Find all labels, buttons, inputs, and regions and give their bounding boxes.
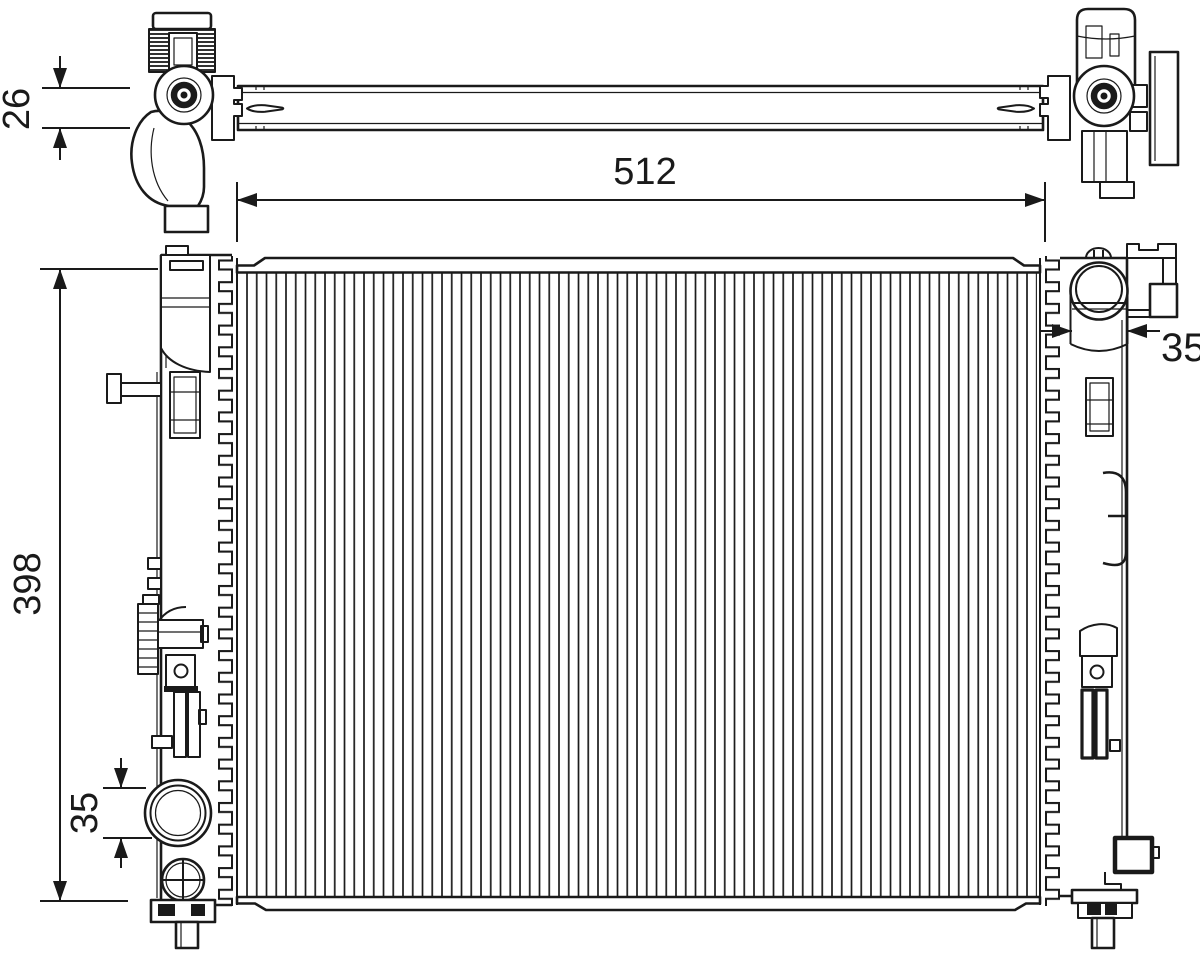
bracket-flag [1080,624,1117,656]
tank-top-profile [1150,52,1178,165]
dim-35-neck-label: 35 [1161,326,1200,370]
channel-leg-1 [174,692,186,757]
bolt-hole [1091,666,1104,679]
drain-plug [162,859,204,901]
ribbed-block-inner [174,38,192,65]
dim-35-inlet-label: 35 [64,792,106,834]
core-bottom-band [237,897,1040,910]
bracket-cap [153,13,211,29]
channel-leg-2 [1096,690,1107,758]
left-tick-2 [148,578,161,589]
side-lug-2 [1130,112,1147,131]
channel-left-tab [152,736,172,748]
foot-block-1 [1087,904,1101,915]
rail-square [1150,284,1177,317]
connector-body [1115,838,1152,872]
radiator-technical-drawing: 26 512 398 35 [0,0,1200,953]
dim-512-label: 512 [613,151,676,193]
ribbed-strip [138,604,158,674]
pivot-dot [1101,93,1108,100]
left-clip-bar [121,383,161,396]
left-tank-top-tab [166,246,188,255]
left-tank-top-slot [170,261,203,270]
dim-26-label: 26 [0,88,38,130]
front-view [107,244,1177,948]
bracket-panel [158,620,203,648]
foot-peg [1092,918,1114,948]
foot-block-2 [191,904,205,916]
radiator-core [217,256,1061,910]
pivot-dot [181,92,188,99]
core-top-band [237,258,1040,273]
filler-neck-outer [1071,263,1128,320]
core-teeth-left [217,256,233,906]
lower-block [1082,131,1127,182]
foot-block-2 [1105,904,1117,915]
foot-block-1 [158,904,175,916]
left-clip-post [107,374,121,403]
bolt-hole [175,665,188,678]
inlet-port [145,780,211,846]
foot-peg [176,922,198,948]
left-tick-1 [148,558,161,569]
dim-398-label: 398 [7,552,49,615]
drawing-svg: 26 512 398 35 [0,0,1200,953]
left-tank-top-bracket [161,255,210,372]
bracket-foot [165,206,208,232]
foot-plate [1072,890,1137,903]
core-teeth-right [1045,256,1061,906]
ribbed-strip-tab [143,595,159,604]
lower-foot [1100,182,1134,198]
core-fins [246,273,1037,897]
channel-leg-1 [1082,690,1093,758]
